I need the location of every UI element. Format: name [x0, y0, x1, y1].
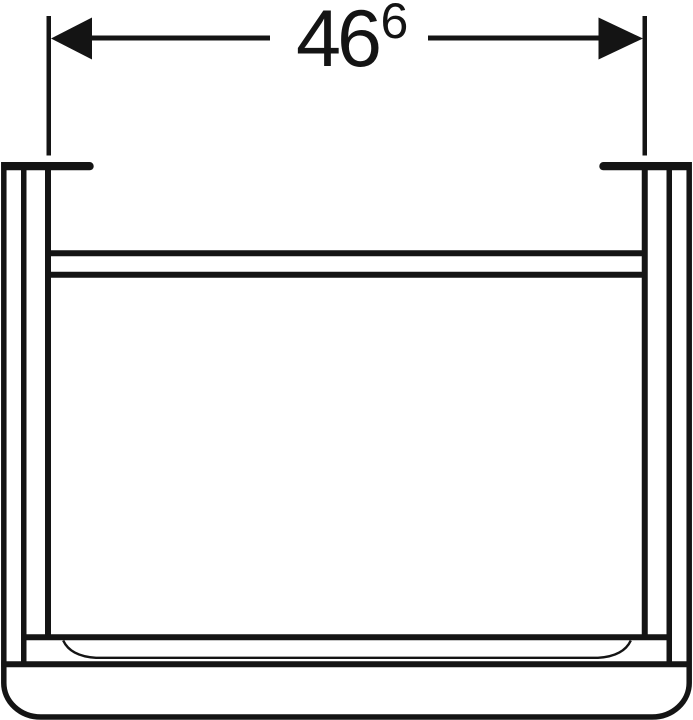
svg-text:46: 46: [296, 0, 379, 84]
svg-text:6: 6: [381, 0, 409, 49]
